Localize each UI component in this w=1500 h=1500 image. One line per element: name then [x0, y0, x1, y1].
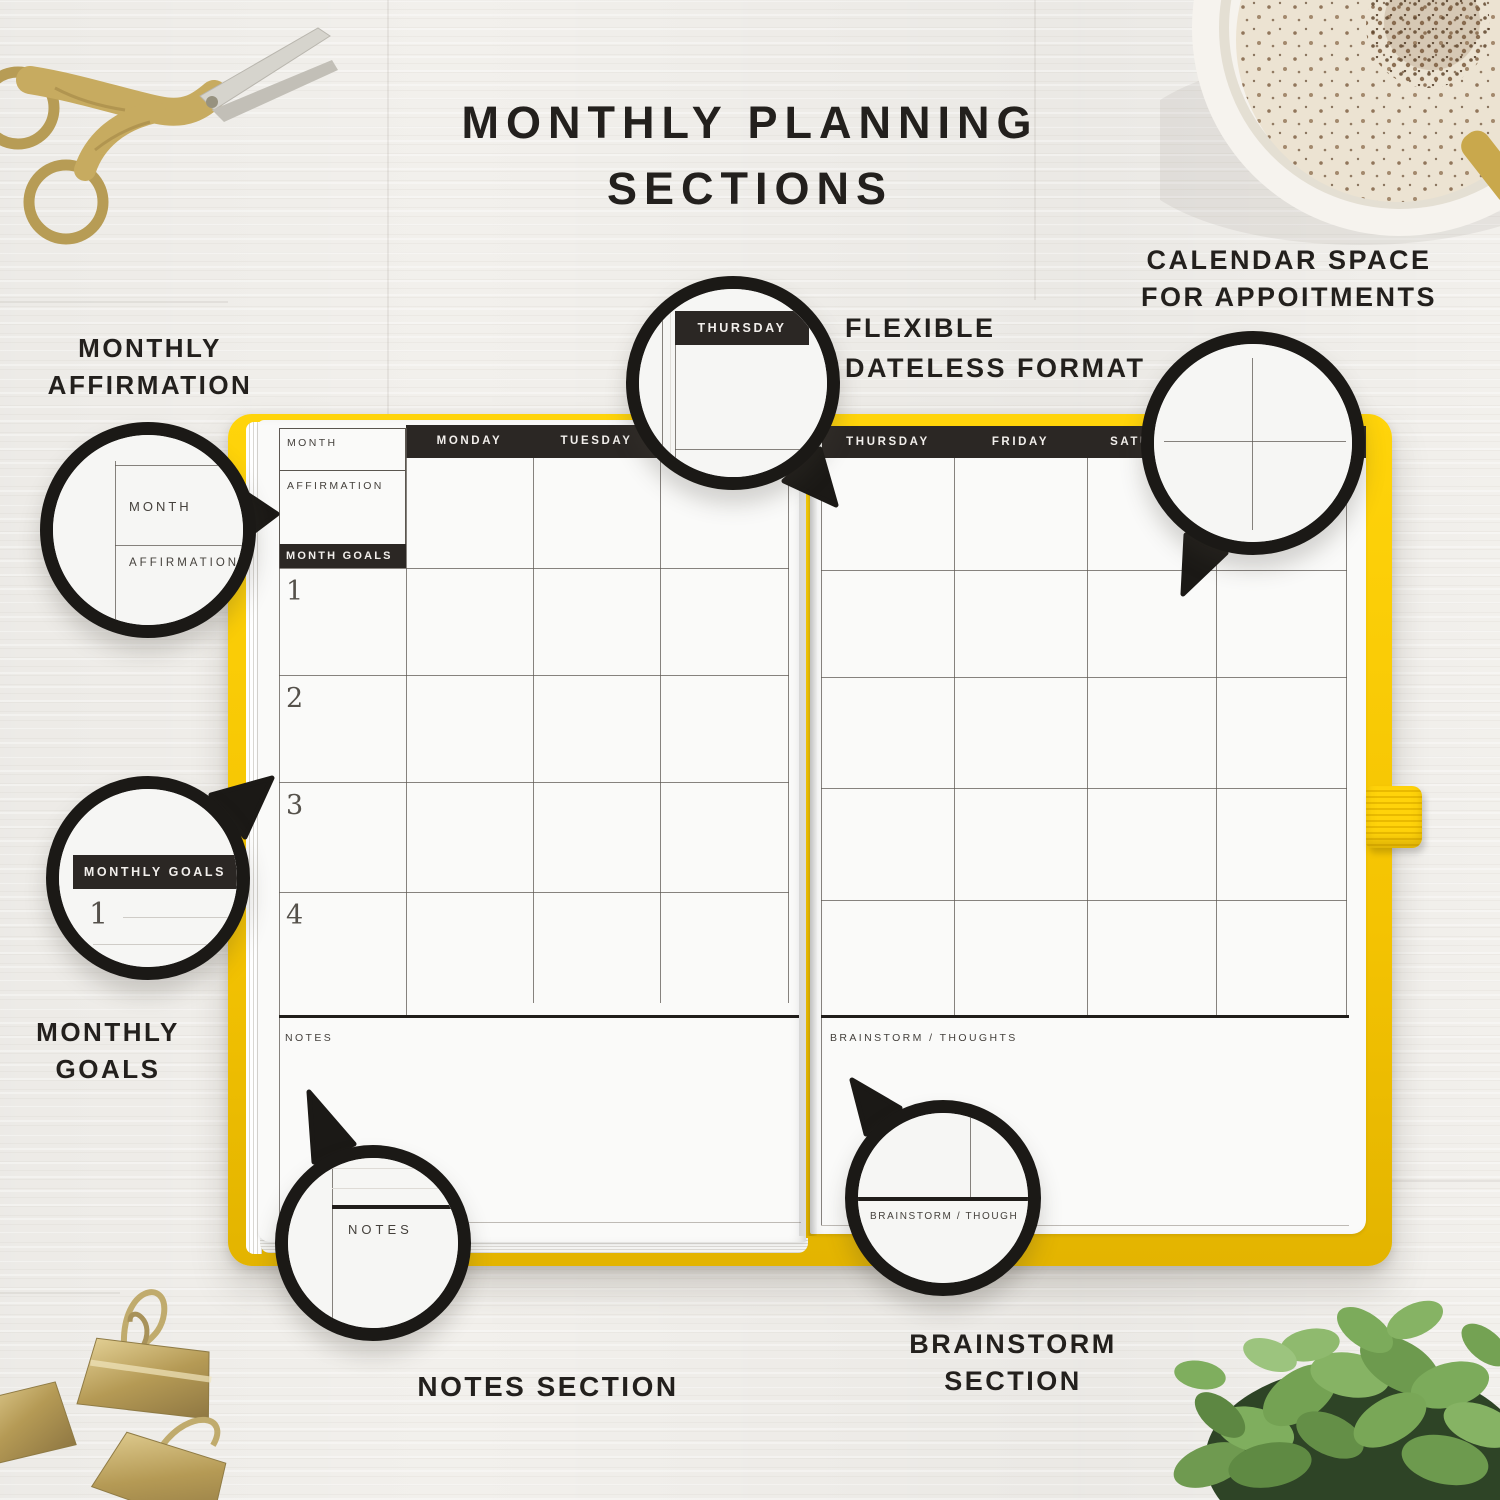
- notes-divider: [279, 1015, 799, 1018]
- plant: [1150, 1225, 1500, 1500]
- grid-line: [675, 345, 676, 477]
- magnifier-brainstorm-label: BRAINSTORM / THOUGH: [870, 1211, 1018, 1222]
- grid-line: [821, 788, 1347, 789]
- magnifier-brainstorm-view: BRAINSTORM / THOUGH: [858, 1113, 1028, 1283]
- page-title-line2: SECTIONS: [300, 156, 1200, 222]
- pen-loop: [1366, 786, 1422, 848]
- spine-gutter: [799, 424, 817, 1236]
- magnifier-affirmation-label: AFFIRMATION: [129, 557, 239, 569]
- label-monthly-affirmation: MONTHLY AFFIRMATION: [28, 330, 272, 404]
- coffee-cup: [1160, 0, 1500, 250]
- wood-seam: [0, 301, 228, 303]
- grid-line: [279, 675, 789, 676]
- magnifier-affirmation-view: MONTH AFFIRMATION: [53, 435, 243, 625]
- page-title: MONTHLY PLANNING SECTIONS: [300, 90, 1200, 222]
- magnifier-calendar: [1141, 331, 1365, 555]
- grid-line: [279, 428, 280, 1222]
- grid-line: [821, 900, 1347, 901]
- notes-label: NOTES: [285, 1032, 333, 1044]
- brainstorm-divider-zoom: [858, 1197, 1028, 1201]
- grid-line: [1252, 358, 1253, 530]
- binder-clips: [0, 1250, 340, 1500]
- month-box: MONTH: [279, 428, 406, 471]
- grid-line: [279, 568, 789, 569]
- product-photo: MONTHLY PLANNING SECTIONS MONTHLY AFFIRM…: [0, 0, 1500, 1500]
- label-monthly-affirmation-line2: AFFIRMATION: [28, 367, 272, 404]
- label-flexible-dateless: FLEXIBLE DATELESS FORMAT: [845, 308, 1185, 388]
- grid-line: [279, 782, 789, 783]
- grid-line: [970, 1113, 971, 1197]
- magnifier-thursday-view: THURSDAY: [639, 289, 827, 477]
- magnifier-thursday-bar: THURSDAY: [675, 311, 809, 345]
- month-goals-label: MONTH GOALS: [286, 550, 406, 562]
- magnifier-goals: MONTHLY GOALS 1: [46, 776, 250, 980]
- goal-number-4: 4: [286, 900, 303, 931]
- ruled-line: [332, 1168, 458, 1169]
- label-brainstorm-line2: SECTION: [853, 1363, 1173, 1400]
- grid-line: [821, 458, 822, 1225]
- grid-line: [533, 458, 534, 1003]
- label-brainstorm-line1: BRAINSTORM: [853, 1326, 1173, 1363]
- grid-line: [821, 570, 1347, 571]
- label-monthly-goals: MONTHLY GOALS: [8, 1014, 208, 1088]
- page-edge-line: [662, 289, 663, 477]
- grid-line: [1346, 458, 1347, 1015]
- grid-line: [660, 458, 661, 1003]
- grid-line: [115, 461, 116, 625]
- grid-line: [1164, 441, 1346, 442]
- grid-line: [406, 428, 407, 1015]
- magnifier-calendar-view: [1154, 344, 1352, 542]
- month-box-label: MONTH: [287, 437, 338, 449]
- brainstorm-divider: [821, 1015, 1349, 1018]
- label-monthly-affirmation-line1: MONTHLY: [28, 330, 272, 367]
- page-title-line1: MONTHLY PLANNING: [300, 90, 1200, 156]
- brainstorm-label: BRAINSTORM / THOUGHTS: [830, 1032, 1018, 1044]
- magnifier-notes-label: NOTES: [348, 1222, 413, 1237]
- grid-line: [1087, 458, 1088, 1015]
- grid-line: [675, 449, 827, 450]
- goal-number-3: 3: [286, 790, 303, 821]
- grid-line: [821, 677, 1347, 678]
- label-monthly-goals-line1: MONTHLY: [8, 1014, 208, 1051]
- magnifier-goals-view: MONTHLY GOALS 1: [59, 789, 237, 967]
- affirmation-box-label: AFFIRMATION: [287, 480, 384, 492]
- grid-line: [788, 458, 789, 1003]
- magnifier-goals-bar: MONTHLY GOALS: [73, 855, 237, 889]
- label-calendar-line2: FOR APPOITMENTS: [1078, 279, 1500, 316]
- ruled-line: [123, 917, 237, 918]
- goal-number-1: 1: [286, 576, 303, 607]
- magnifier-affirmation: MONTH AFFIRMATION: [40, 422, 256, 638]
- grid-line: [115, 545, 243, 546]
- month-goals-bar: MONTH GOALS: [279, 544, 406, 568]
- label-brainstorm-section: BRAINSTORM SECTION: [853, 1326, 1173, 1400]
- magnifier-month-label: MONTH: [129, 499, 192, 514]
- grid-line: [115, 465, 243, 466]
- wood-seam: [1390, 1180, 1500, 1182]
- day-header-friday: FRIDAY: [954, 436, 1087, 448]
- planner-left-page: MONTH AFFIRMATION MONTH GOALS MONDAY TUE…: [258, 420, 806, 1242]
- day-header-monday: MONDAY: [406, 435, 533, 447]
- ruled-line: [93, 944, 237, 945]
- label-flexible-line2: DATELESS FORMAT: [845, 348, 1185, 388]
- magnifier-goals-number: 1: [89, 897, 108, 932]
- scissors: [0, 10, 360, 260]
- affirmation-box: AFFIRMATION: [279, 470, 406, 545]
- label-monthly-goals-line2: GOALS: [8, 1051, 208, 1088]
- grid-line: [954, 458, 955, 1015]
- goal-number-2: 2: [286, 683, 303, 714]
- label-notes-section: NOTES SECTION: [348, 1368, 748, 1405]
- ruled-line: [332, 1188, 458, 1189]
- magnifier-thursday: THURSDAY: [626, 276, 840, 490]
- magnifier-brainstorm: BRAINSTORM / THOUGH: [845, 1100, 1041, 1296]
- notes-divider-zoom: [332, 1205, 458, 1209]
- label-calendar-space: CALENDAR SPACE FOR APPOITMENTS: [1078, 242, 1500, 316]
- grid-line: [279, 892, 789, 893]
- day-header-thursday: THURSDAY: [822, 436, 954, 448]
- page-edge-line: [670, 289, 671, 477]
